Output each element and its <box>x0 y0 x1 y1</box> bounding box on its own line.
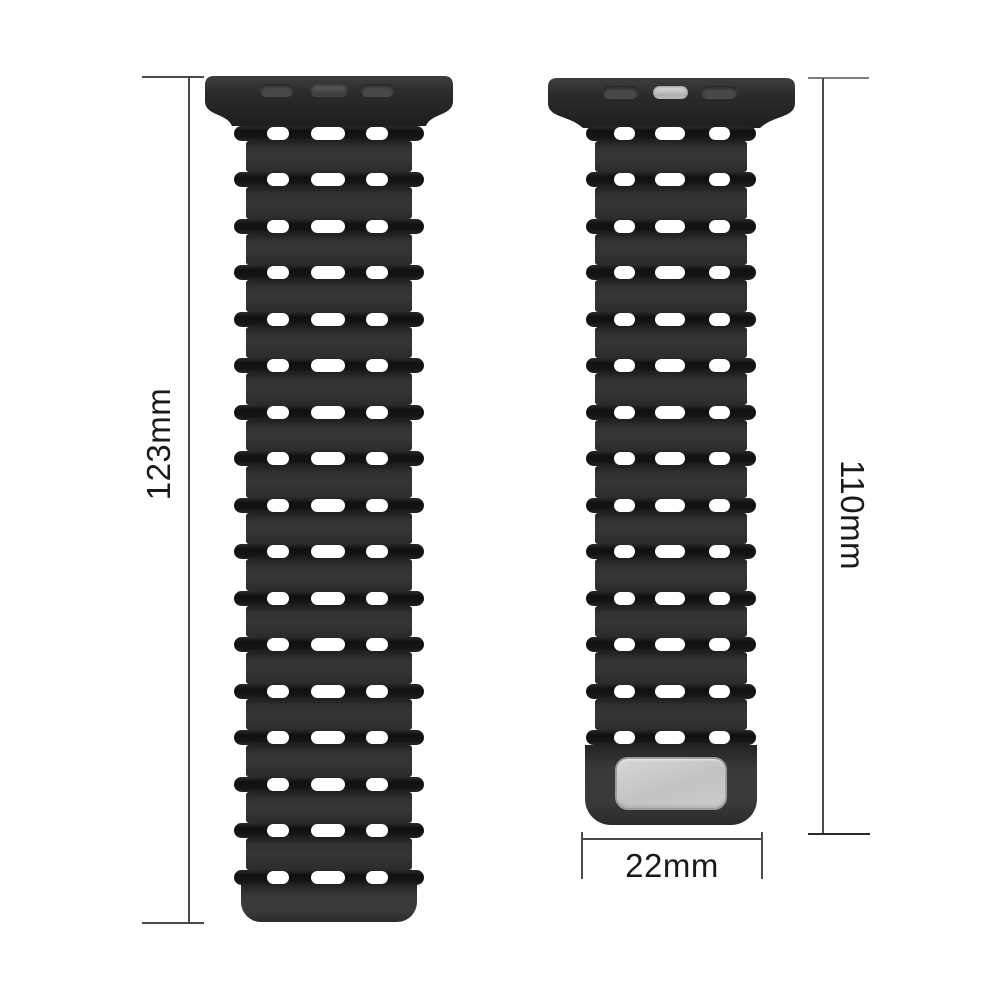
dimension-cap-bottom <box>808 833 870 835</box>
strap-hole <box>366 871 388 884</box>
strap-segment <box>246 420 412 452</box>
strap-hole <box>267 359 289 372</box>
strap-segment <box>595 699 747 731</box>
strap-hole <box>366 220 388 233</box>
strap-rib-row <box>234 870 424 885</box>
product-dimension-image: 123mm 110mm 22mm <box>0 0 1000 1000</box>
strap-rib-row <box>586 126 756 141</box>
strap-rib-row <box>234 777 424 792</box>
strap-rib-row <box>234 126 424 141</box>
strap-hole <box>267 778 289 791</box>
strap-hole <box>267 824 289 837</box>
strap-rib-row <box>234 219 424 234</box>
dimension-label-left-length: 123mm <box>139 379 179 509</box>
strap-hole <box>311 871 345 884</box>
strap-hole <box>709 731 730 744</box>
strap-hole <box>366 731 388 744</box>
strap-rib-row <box>234 172 424 187</box>
strap-hole <box>655 220 685 233</box>
strap-hole <box>614 220 635 233</box>
strap-segment <box>595 280 747 312</box>
strap-hole <box>366 173 388 186</box>
strap-hole <box>709 452 730 465</box>
strap-hole <box>366 824 388 837</box>
strap-segment <box>595 559 747 591</box>
strap-segment <box>246 373 412 405</box>
strap-rib-row <box>234 498 424 513</box>
lug-slot <box>260 84 293 97</box>
strap-hole <box>366 592 388 605</box>
strap-hole <box>267 313 289 326</box>
strap-segment <box>246 606 412 638</box>
strap-hole <box>655 406 685 419</box>
strap-hole <box>614 173 635 186</box>
strap-rib-row <box>234 637 424 652</box>
strap-rib-row <box>586 637 756 652</box>
strap-hole <box>614 452 635 465</box>
strap-hole <box>267 406 289 419</box>
strap-hole <box>655 359 685 372</box>
strap-rib-row <box>234 730 424 745</box>
strap-segment <box>246 234 412 266</box>
strap-segment <box>595 606 747 638</box>
strap-hole <box>366 638 388 651</box>
strap-rib-row <box>586 265 756 280</box>
dimension-cap-top <box>142 76 204 78</box>
magnet-plate <box>615 757 727 810</box>
dimension-label-right-length: 110mm <box>832 450 872 580</box>
strap-hole <box>366 545 388 558</box>
strap-segment <box>595 187 747 219</box>
strap-hole <box>614 685 635 698</box>
strap-hole <box>614 731 635 744</box>
dimension-tick-left <box>581 832 583 879</box>
strap-rib-row <box>586 730 756 745</box>
strap-rib-row <box>234 591 424 606</box>
strap-rib-row <box>586 405 756 420</box>
strap-hole <box>311 173 345 186</box>
strap-hole <box>655 127 685 140</box>
watch-strap-short <box>548 78 795 825</box>
strap-hole <box>311 592 345 605</box>
strap-hole <box>311 220 345 233</box>
strap-end-cap <box>585 745 757 825</box>
strap-segment <box>595 420 747 452</box>
strap-rib-row <box>234 405 424 420</box>
strap-hole <box>311 406 345 419</box>
strap-hole <box>267 127 289 140</box>
strap-rib-row <box>586 451 756 466</box>
strap-hole <box>366 452 388 465</box>
strap-hole <box>311 685 345 698</box>
strap-rib-row <box>586 172 756 187</box>
strap-rib-row <box>234 312 424 327</box>
strap-segment <box>595 466 747 498</box>
strap-hole <box>709 638 730 651</box>
strap-hole <box>709 406 730 419</box>
strap-hole <box>366 266 388 279</box>
strap-segment <box>246 792 412 824</box>
strap-hole <box>709 592 730 605</box>
strap-hole <box>614 545 635 558</box>
lug-slot-silver <box>653 86 688 99</box>
strap-rib-row <box>586 358 756 373</box>
lug-slot <box>603 86 638 99</box>
strap-body <box>234 126 424 923</box>
strap-segment <box>246 745 412 777</box>
strap-hole <box>311 731 345 744</box>
strap-hole <box>311 824 345 837</box>
strap-hole <box>709 127 730 140</box>
strap-segment <box>246 699 412 731</box>
strap-segment <box>595 513 747 545</box>
strap-hole <box>366 313 388 326</box>
strap-rib-row <box>234 265 424 280</box>
dimension-line-horizontal <box>581 838 763 840</box>
strap-hole <box>655 545 685 558</box>
strap-segment <box>246 838 412 870</box>
strap-hole <box>614 127 635 140</box>
strap-hole <box>267 685 289 698</box>
strap-hole <box>655 592 685 605</box>
strap-rib-row <box>234 823 424 838</box>
strap-hole <box>655 452 685 465</box>
strap-body <box>586 126 756 826</box>
strap-hole <box>311 266 345 279</box>
strap-hole <box>267 731 289 744</box>
strap-hole <box>655 685 685 698</box>
strap-hole <box>267 266 289 279</box>
strap-hole <box>614 313 635 326</box>
strap-hole <box>267 545 289 558</box>
strap-hole <box>709 313 730 326</box>
strap-hole <box>366 499 388 512</box>
strap-segment <box>246 466 412 498</box>
strap-hole <box>366 406 388 419</box>
strap-hole <box>311 545 345 558</box>
strap-hole <box>366 359 388 372</box>
strap-hole <box>614 592 635 605</box>
dimension-cap-top <box>808 77 869 79</box>
lug-slot <box>361 84 394 97</box>
strap-rib-row <box>586 219 756 234</box>
strap-rib-row <box>234 684 424 699</box>
strap-hole <box>709 685 730 698</box>
strap-segment <box>246 652 412 684</box>
strap-segment <box>246 559 412 591</box>
lug-slot <box>701 86 737 99</box>
strap-hole <box>311 638 345 651</box>
strap-hole <box>311 778 345 791</box>
strap-hole <box>655 313 685 326</box>
strap-hole <box>267 871 289 884</box>
strap-rib-row <box>234 451 424 466</box>
strap-hole <box>311 359 345 372</box>
strap-hole <box>311 452 345 465</box>
strap-segment <box>246 141 412 173</box>
strap-hole <box>709 359 730 372</box>
strap-hole <box>655 266 685 279</box>
strap-segment <box>595 373 747 405</box>
watch-strap-long <box>205 76 453 922</box>
strap-hole <box>311 313 345 326</box>
strap-hole <box>366 127 388 140</box>
strap-hole <box>267 173 289 186</box>
strap-hole <box>655 499 685 512</box>
strap-hole <box>267 499 289 512</box>
strap-hole <box>709 545 730 558</box>
strap-hole <box>655 731 685 744</box>
strap-segment <box>246 187 412 219</box>
strap-rib-row <box>586 312 756 327</box>
strap-hole <box>655 173 685 186</box>
strap-hole <box>614 359 635 372</box>
strap-hole <box>267 220 289 233</box>
strap-rib-row <box>234 544 424 559</box>
strap-hole <box>614 638 635 651</box>
strap-segment <box>595 327 747 359</box>
strap-rib-row <box>586 684 756 699</box>
strap-hole <box>709 499 730 512</box>
strap-hole <box>311 499 345 512</box>
strap-rib-row <box>586 591 756 606</box>
dimension-line-vertical <box>822 78 824 835</box>
strap-hole <box>311 127 345 140</box>
strap-hole <box>655 638 685 651</box>
strap-rib-row <box>586 544 756 559</box>
strap-segment <box>246 327 412 359</box>
dimension-line-vertical <box>188 76 190 924</box>
dimension-tick-right <box>761 832 763 879</box>
strap-hole <box>267 452 289 465</box>
strap-segment <box>595 234 747 266</box>
strap-hole <box>366 685 388 698</box>
strap-hole <box>366 778 388 791</box>
strap-rib-row <box>234 358 424 373</box>
strap-segment <box>595 652 747 684</box>
strap-hole <box>709 220 730 233</box>
strap-hole <box>614 266 635 279</box>
lug-slot-center <box>310 84 348 97</box>
strap-hole <box>267 592 289 605</box>
strap-end-cap <box>241 885 417 923</box>
strap-hole <box>709 266 730 279</box>
strap-hole <box>614 499 635 512</box>
strap-segment <box>246 280 412 312</box>
dimension-cap-bottom <box>142 922 204 924</box>
strap-hole <box>267 638 289 651</box>
strap-segment <box>595 141 747 173</box>
strap-segment <box>246 513 412 545</box>
strap-rib-row <box>586 498 756 513</box>
dimension-label-width: 22mm <box>607 848 737 884</box>
strap-hole <box>614 406 635 419</box>
strap-hole <box>709 173 730 186</box>
